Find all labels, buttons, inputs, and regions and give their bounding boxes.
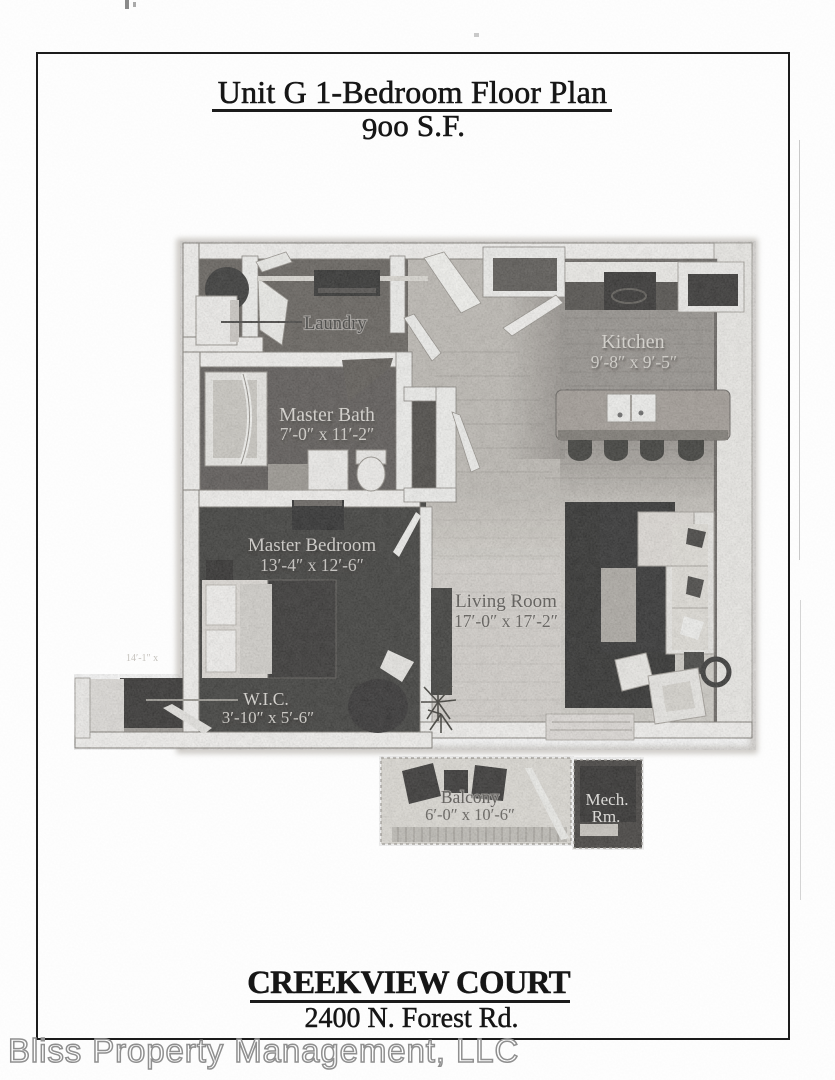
svg-text:14′-1″ x: 14′-1″ x [126, 653, 158, 664]
